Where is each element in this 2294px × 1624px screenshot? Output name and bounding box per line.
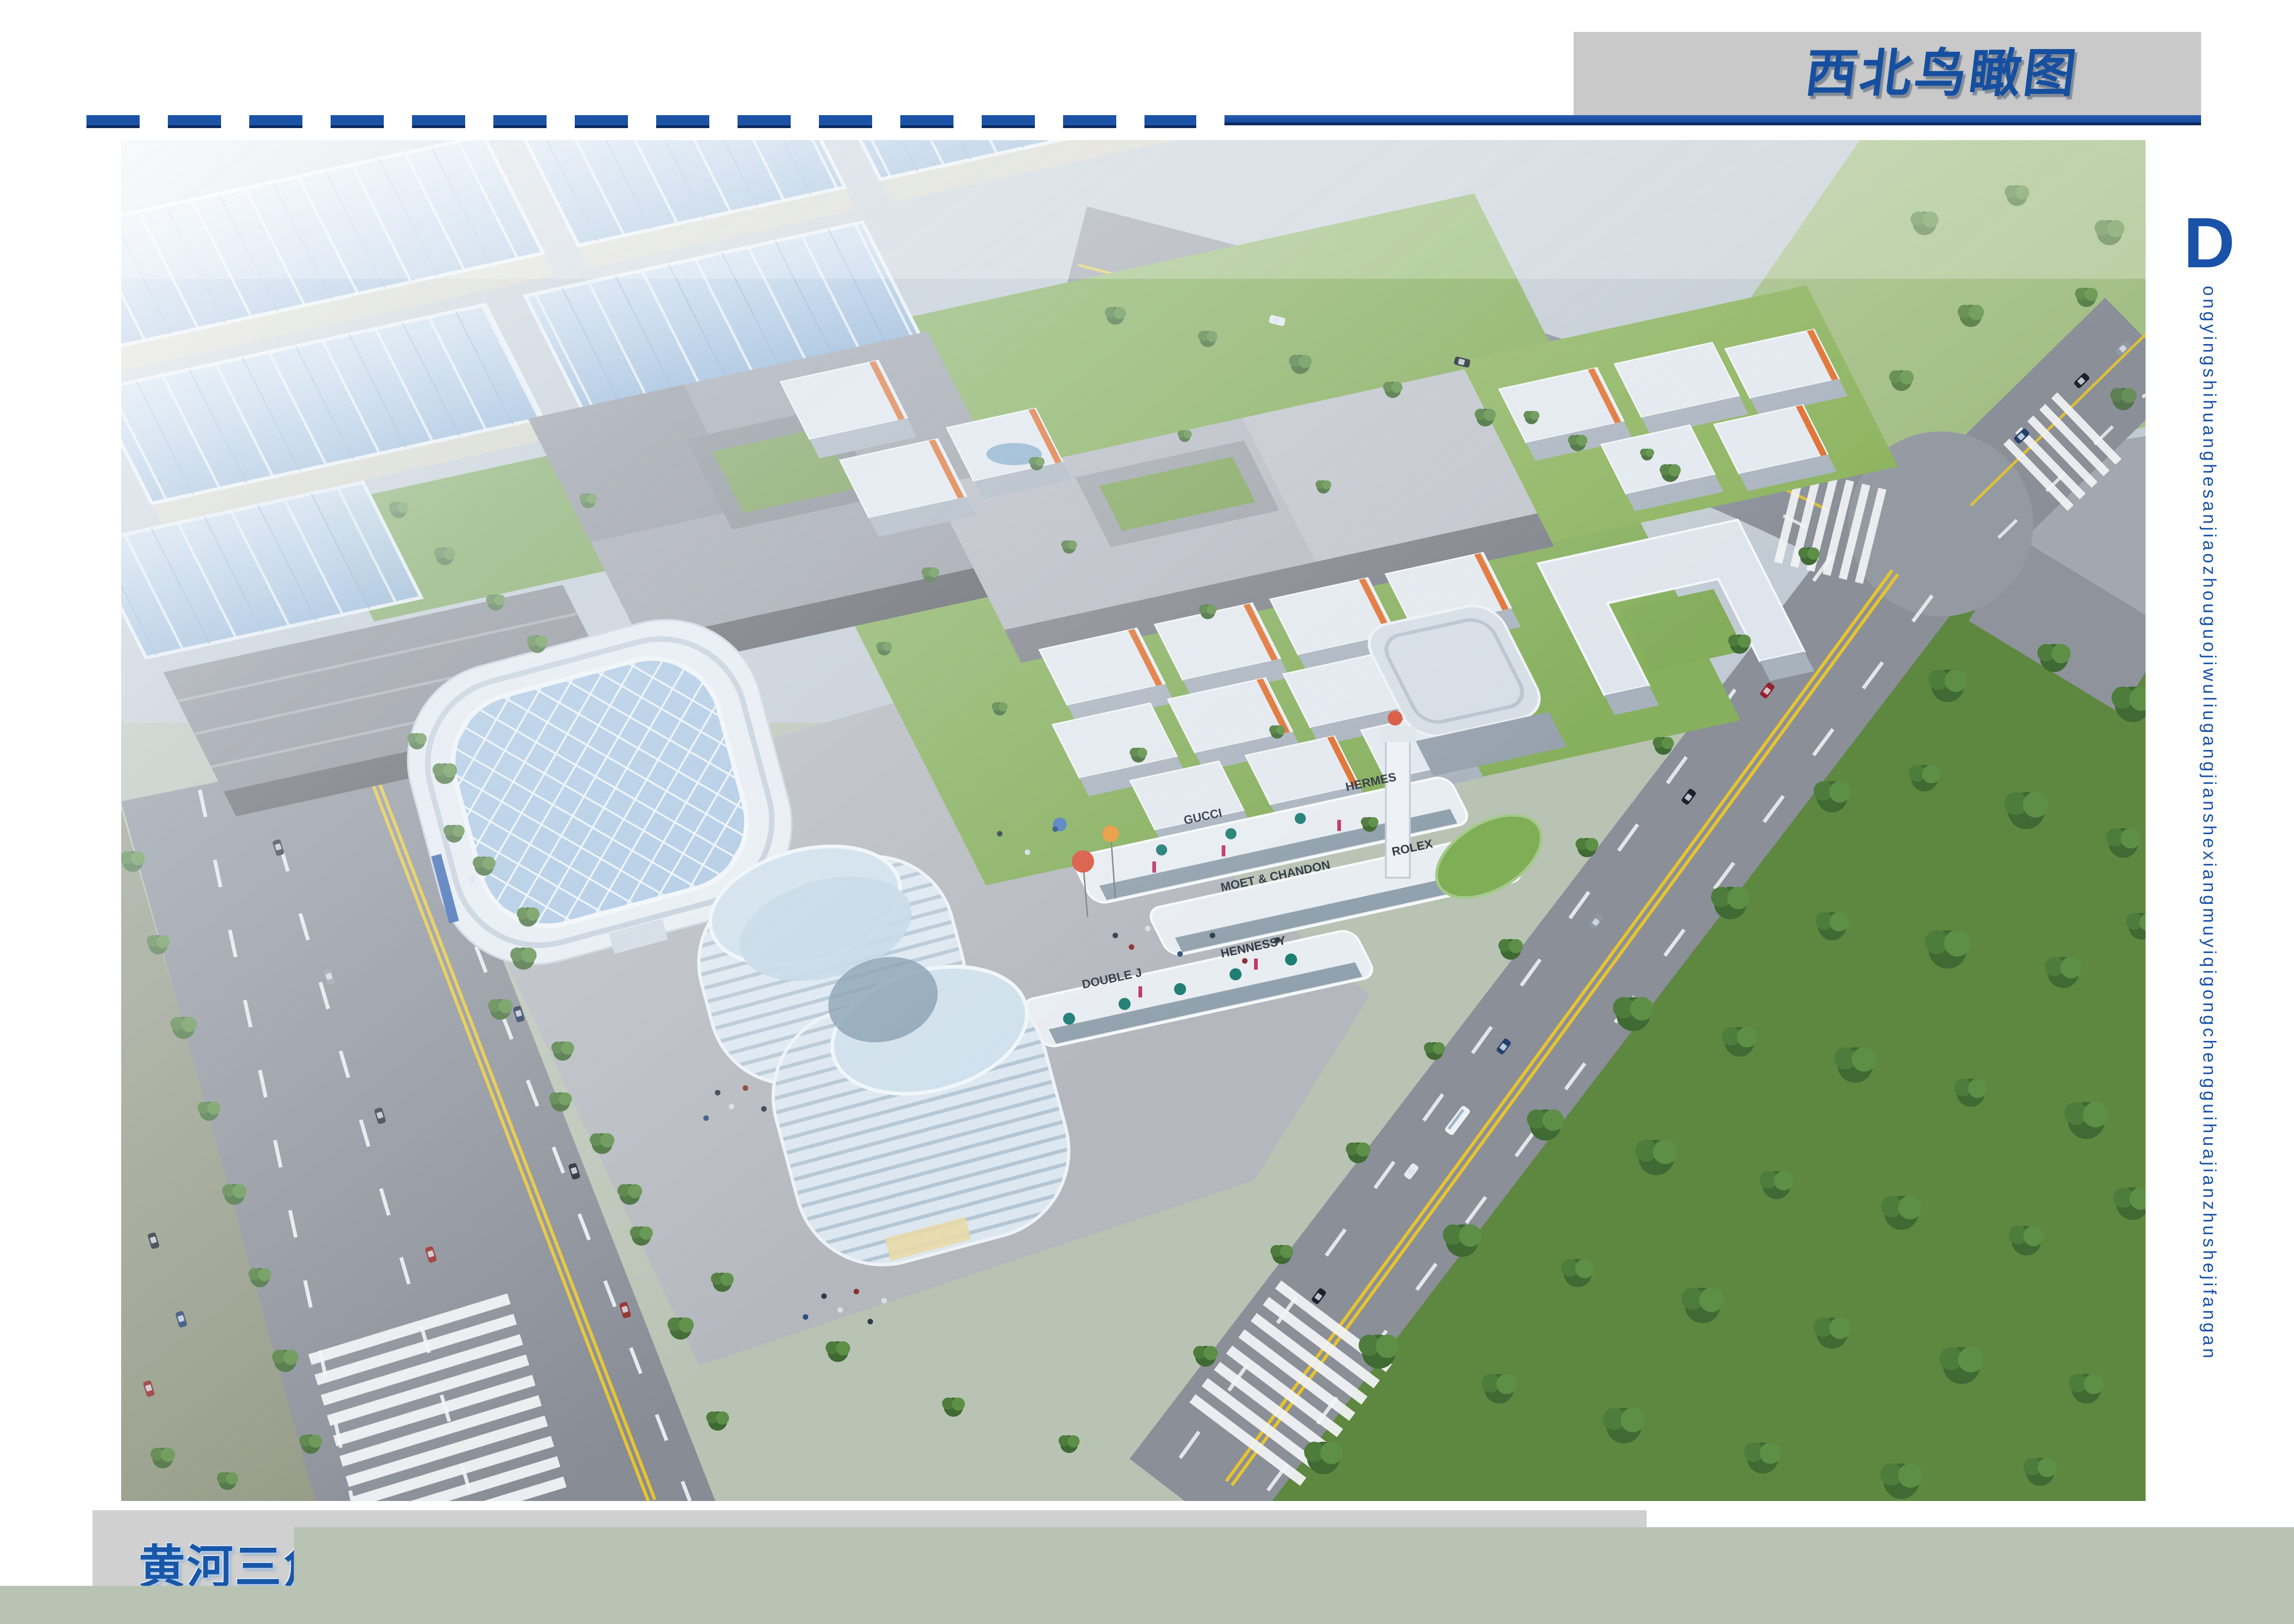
haze-overlay [121, 140, 2146, 1501]
header-dashed-rule [86, 115, 1196, 128]
view-title: 西北鸟瞰图 [1623, 32, 2261, 115]
aerial-rendering: GUCCI MOET & CHANDON HERMES ROLEX DOUBLE… [121, 140, 2146, 1501]
dashed-rule-shadow [86, 125, 1196, 128]
dashed-rule-blue [86, 115, 1196, 125]
project-title-bar: 黄河三角洲国际物流港一期工程生活配套服务区规划设计（方案一） [92, 1510, 1647, 1622]
view-title-box: 西北鸟瞰图 [1574, 32, 2201, 115]
project-title: 黄河三角洲国际物流港一期工程生活配套服务区规划设计（方案一） [92, 1510, 1647, 1624]
side-caption-vertical-text: ongyingshihuanghesanjiaozhouguojiwuliuga… [2199, 286, 2219, 1361]
horizon-haze [121, 140, 2146, 279]
header-solid-rule [1224, 115, 2201, 125]
side-caption-initial: D [2183, 207, 2235, 278]
